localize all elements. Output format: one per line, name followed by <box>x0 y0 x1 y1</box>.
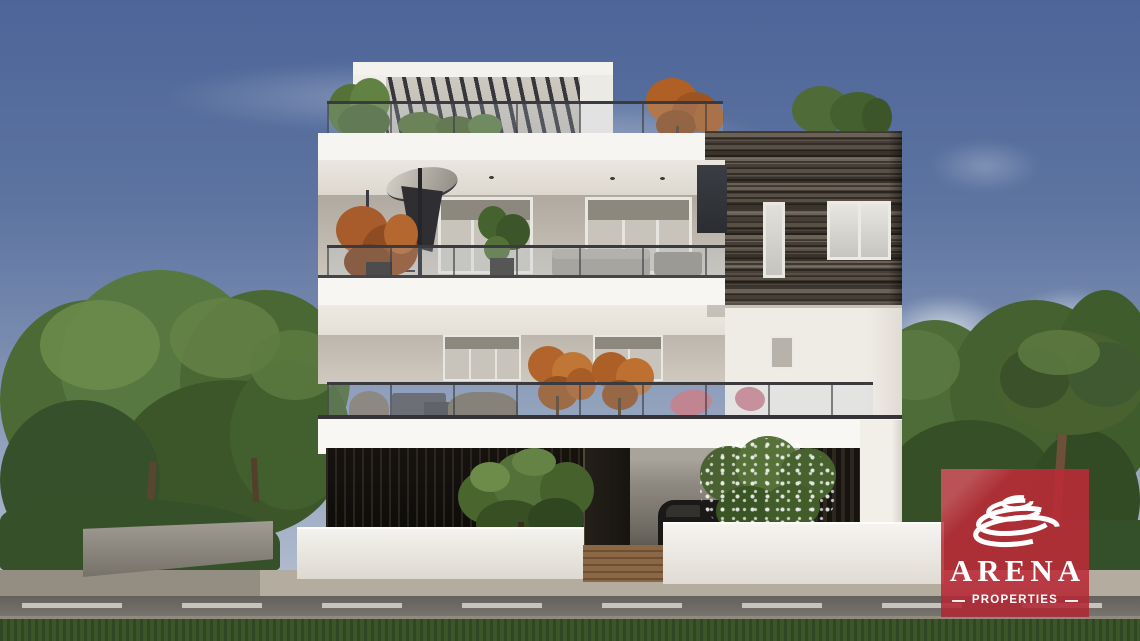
small-window <box>770 336 794 369</box>
pine-bush-highlight <box>512 448 556 476</box>
brand-name: ARENA <box>941 555 1089 586</box>
paved-driveway <box>583 545 664 582</box>
tagline-rule <box>952 600 965 602</box>
dark-corner-panel <box>697 165 727 233</box>
car-windshield <box>666 505 700 517</box>
arena-properties-logo: ARENA PROPERTIES <box>941 469 1089 617</box>
planter-wall <box>297 527 584 579</box>
tagline-row: PROPERTIES <box>941 595 1089 607</box>
sliding-door <box>443 335 521 381</box>
brand-tagline: PROPERTIES <box>972 595 1058 607</box>
arena-rings-icon <box>966 480 1064 553</box>
door-mullion <box>469 349 471 379</box>
window <box>827 201 891 260</box>
pine-highlight <box>1018 330 1100 375</box>
architectural-render: ARENA PROPERTIES <box>0 0 1140 641</box>
narrow-window <box>763 202 785 278</box>
tree-highlight <box>40 300 160 390</box>
door-mullion <box>495 349 497 379</box>
cloud <box>930 140 1040 192</box>
tagline-rule <box>1065 600 1078 602</box>
ceiling-light <box>489 176 494 179</box>
planter-wall <box>663 522 944 584</box>
grass-verge <box>0 619 1140 641</box>
pine-bush-highlight <box>470 462 510 492</box>
window-mullion <box>858 204 861 257</box>
ceiling-light <box>610 177 615 180</box>
sidewalk-shadow <box>0 570 260 598</box>
ceiling-light <box>660 177 665 180</box>
